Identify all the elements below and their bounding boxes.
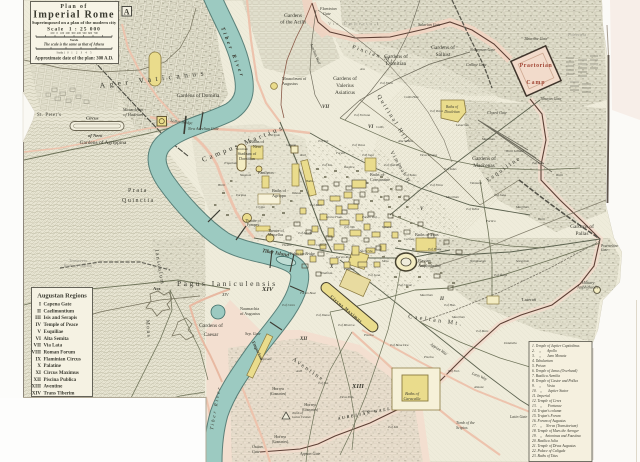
svg-text:Gardens of: Gardens of [570, 223, 594, 230]
svg-text:14. Trajan's column: 14. Trajan's column [532, 409, 562, 413]
svg-text:T.of Fort.: T.of Fort. [448, 369, 460, 373]
svg-text:Nymphaeum: Nymphaeum [469, 259, 487, 263]
svg-text:5. Prison: 5. Prison [532, 364, 546, 368]
svg-text:Circus: Circus [86, 116, 99, 121]
svg-text:Polveriera: Polveriera [568, 32, 586, 37]
svg-text:Gate: Gate [323, 11, 331, 16]
svg-text:22. Palace of Caligula: 22. Palace of Caligula [532, 449, 566, 453]
svg-text:Nero: Nero [253, 144, 261, 149]
svg-text:Gardens of Domitia: Gardens of Domitia [177, 92, 220, 99]
svg-text:Arch: Arch [295, 369, 302, 373]
svg-text:6. Temple of Janus (Overhead): 6. Temple of Janus (Overhead) [532, 369, 578, 373]
svg-text:Horrea: Horrea [272, 386, 284, 391]
svg-text:Macellum: Macellum [515, 205, 529, 209]
svg-text:Arx: Arx [153, 286, 161, 291]
svg-text:Trigarium: Trigarium [224, 161, 238, 165]
svg-text:Odeum: Odeum [292, 191, 302, 195]
svg-text:T.of Venus: T.of Venus [352, 143, 366, 147]
svg-text:Augustus: Augustus [282, 81, 298, 86]
svg-text:T.of Minerva: T.of Minerva [338, 323, 355, 327]
svg-text:100 0 100 200 300 400: 100 0 100 200 300 400 500 600 700 [50, 32, 98, 35]
svg-text:of Nero: of Nero [88, 133, 103, 138]
svg-text:XII: XII [33, 378, 41, 383]
svg-text:Asiaticus: Asiaticus [335, 90, 355, 96]
svg-text:Palatine: Palatine [343, 267, 355, 271]
svg-text:Quinctia: Quinctia [122, 198, 155, 204]
svg-text:Fabrician Bridge: Fabrician Bridge [289, 252, 315, 256]
svg-text:(Granaries): (Granaries) [272, 440, 289, 444]
svg-text:Horti: Horti [555, 173, 563, 177]
svg-text:Baths of Titus: Baths of Titus [415, 232, 439, 237]
svg-text:Esquiliae: Esquiliae [44, 330, 65, 335]
svg-text:15. Trajan's Forum: 15. Trajan's Forum [532, 414, 561, 418]
svg-text:Forum Rom.: Forum Rom. [335, 255, 352, 259]
svg-text:VIII: VIII [32, 350, 42, 355]
svg-text:T.of Peace: T.of Peace [428, 247, 442, 251]
svg-text:IV: IV [35, 323, 41, 328]
svg-text:T.of Juno: T.of Juno [362, 153, 374, 157]
svg-text:Pompey: Pompey [247, 223, 260, 227]
svg-text:Collis Hort.: Collis Hort. [404, 95, 419, 99]
svg-text:Ara: Ara [359, 67, 365, 71]
svg-text:X: X [329, 265, 334, 270]
svg-text:(Granaries): (Granaries) [270, 392, 287, 396]
svg-text:Sessorium: Sessorium [516, 259, 530, 263]
svg-text:T.of Isis: T.of Isis [322, 163, 333, 167]
svg-text:V: V [37, 330, 41, 335]
svg-text:Baths of: Baths of [446, 105, 459, 109]
svg-text:Euripus: Euripus [235, 193, 247, 197]
svg-text:Carinae: Carinae [404, 237, 415, 241]
svg-text:Forum Boar.: Forum Boar. [299, 291, 317, 295]
svg-text:Nomentan Gate: Nomentan Gate [469, 47, 495, 52]
svg-text:Amphitheatre: Amphitheatre [576, 285, 599, 290]
svg-text:T.of Fortuna: T.of Fortuna [354, 113, 370, 117]
svg-text:Portico: Portico [485, 219, 496, 223]
svg-text:Almone: Almone [473, 385, 484, 389]
svg-text:16. Forum of Augustus: 16. Forum of Augustus [532, 419, 566, 423]
svg-text:Horrea: Horrea [304, 402, 316, 407]
svg-text:11. Imperial: 11. Imperial [532, 394, 550, 398]
svg-text:T.of Spes: T.of Spes [532, 161, 544, 165]
svg-text:Trans Tiberim: Trans Tiberim [44, 392, 76, 397]
svg-text:Valerius: Valerius [336, 83, 354, 89]
svg-text:Crypta: Crypta [256, 205, 265, 209]
svg-text:4. Tabularium: 4. Tabularium [532, 359, 553, 363]
svg-text:Meta: Meta [381, 259, 389, 263]
svg-text:Colline Gate: Colline Gate [466, 62, 487, 67]
svg-text:Caesar: Caesar [204, 332, 219, 338]
svg-text:Circus Flam.: Circus Flam. [326, 215, 343, 219]
svg-text:T.of Hon.: T.of Hon. [444, 303, 456, 307]
svg-text:T.of Venus: T.of Venus [430, 109, 444, 113]
svg-text:T.of Isis: T.of Isis [388, 425, 399, 429]
svg-text:III: III [35, 316, 41, 321]
svg-text:St. Peter's: St. Peter's [37, 113, 62, 118]
svg-text:Camp: Camp [526, 80, 545, 86]
svg-text:Scipios: Scipios [456, 425, 468, 430]
svg-text:Theatre: Theatre [282, 243, 292, 247]
svg-text:Caelimontium: Caelimontium [44, 309, 75, 314]
svg-text:XIV: XIV [261, 286, 274, 293]
svg-text:New Aurelian Gate: New Aurelian Gate [187, 126, 219, 131]
svg-text:T.of Bona Dea: T.of Bona Dea [390, 343, 409, 347]
svg-text:Lateran: Lateran [522, 297, 537, 302]
svg-text:12. Temple of Ceres: 12. Temple of Ceres [532, 399, 562, 403]
svg-text:XI: XI [35, 371, 41, 376]
svg-text:Caracalla: Caracalla [404, 396, 421, 401]
svg-text:IX: IX [35, 357, 41, 362]
svg-text:Alta Semita: Alta Semita [44, 337, 70, 342]
svg-text:21. Temple of Divus Augustus: 21. Temple of Divus Augustus [532, 444, 576, 448]
svg-text:Capitol: Capitol [316, 243, 326, 247]
svg-text:Macellum: Macellum [445, 195, 459, 199]
svg-text:Prata: Prata [128, 188, 148, 194]
svg-text:Superimposed on a plan of the: Superimposed on a plan of the modern cit… [32, 20, 117, 25]
svg-text:Gardens of: Gardens of [199, 322, 223, 329]
svg-text:T.of Tellus: T.of Tellus [466, 207, 480, 211]
svg-text:Gate: Gate [252, 449, 260, 454]
svg-text:Lavacrum: Lavacrum [455, 123, 470, 127]
svg-text:XIV: XIV [32, 392, 42, 397]
svg-text:Sallust: Sallust [436, 52, 451, 58]
svg-text:Baths: Baths [306, 179, 314, 183]
svg-text:Domitian: Domitian [386, 61, 407, 67]
svg-text:Basilica: Basilica [344, 165, 355, 169]
svg-text:T.of Diana: T.of Diana [316, 313, 330, 317]
svg-text:Ustrinum: Ustrinum [268, 133, 281, 137]
svg-text:Capena Gate: Capena Gate [44, 303, 73, 308]
svg-text:T.of Mars: T.of Mars [310, 203, 323, 207]
svg-text:Tiburtine Gate: Tiburtine Gate [524, 36, 548, 41]
svg-text:Latin Gate: Latin Gate [509, 414, 527, 419]
svg-text:20. Basilica Julia: 20. Basilica Julia [532, 439, 558, 443]
svg-text:VII: VII [33, 344, 41, 349]
svg-text:Agrippa: Agrippa [272, 193, 286, 198]
svg-text:Macellum: Macellum [481, 137, 495, 141]
svg-text:18. Temple of Mars the Avenger: 18. Temple of Mars the Avenger [532, 429, 579, 433]
svg-text:Via Umberto I: Via Umberto I [328, 21, 381, 26]
svg-text:Appian Gate: Appian Gate [299, 451, 321, 456]
svg-text:Piscina Publica: Piscina Publica [44, 378, 77, 383]
svg-text:Gardens: Gardens [284, 13, 302, 19]
svg-text:XIV: XIV [221, 292, 229, 297]
svg-text:Circus Maximus: Circus Maximus [44, 371, 79, 376]
svg-text:Roman Forum: Roman Forum [44, 350, 76, 355]
svg-text:Subura: Subura [382, 225, 392, 229]
svg-text:XIII: XIII [351, 383, 364, 390]
svg-text:7. Basilica Aemilia: 7. Basilica Aemilia [532, 374, 560, 378]
svg-text:Piscina: Piscina [423, 355, 434, 359]
svg-text:XII: XII [299, 337, 308, 342]
svg-text:T.of Juno: T.of Juno [494, 193, 506, 197]
svg-text:T.of Ceres: T.of Ceres [282, 303, 296, 307]
svg-text:Horti Lolliani: Horti Lolliani [505, 149, 524, 153]
svg-text:Stagnum: Stagnum [240, 173, 252, 177]
svg-text:Caius Cestius: Caius Cestius [292, 415, 311, 419]
svg-text:The scale is the same as that: The scale is the same as that of Athens [44, 43, 105, 47]
svg-text:Sep. Gate: Sep. Gate [245, 331, 261, 336]
svg-text:Collis: Collis [376, 125, 384, 129]
svg-text:of Hadrian: of Hadrian [123, 112, 143, 117]
svg-text:Closed Gate: Closed Gate [487, 110, 507, 115]
svg-text:Piscina: Piscina [363, 333, 374, 337]
svg-text:Railway Station: Railway Station [64, 263, 93, 268]
svg-text:Pallas: Pallas [576, 231, 589, 237]
svg-text:Vicus Port.: Vicus Port. [340, 395, 354, 399]
svg-text:VII: VII [322, 105, 330, 110]
svg-text:Via Lata: Via Lata [44, 344, 63, 349]
svg-text:T.of Sun: T.of Sun [318, 139, 329, 143]
svg-text:VI: VI [35, 337, 41, 342]
svg-text:Pantheon: Pantheon [258, 170, 274, 175]
svg-text:T.of Salus: T.of Salus [444, 167, 457, 171]
svg-text:of Augustus: of Augustus [240, 311, 260, 316]
svg-text:T.of Apollo: T.of Apollo [298, 231, 312, 235]
svg-text:Vicus Longus: Vicus Longus [420, 153, 438, 157]
svg-text:Aventine: Aventine [44, 385, 64, 390]
svg-text:T.of Mars: T.of Mars [476, 329, 489, 333]
svg-text:T.of Ops: T.of Ops [344, 225, 356, 229]
svg-text:T.of Venus: T.of Venus [494, 273, 508, 277]
svg-text:of the Acilii: of the Acilii [280, 19, 306, 26]
svg-text:Temple of Peace: Temple of Peace [44, 323, 79, 328]
svg-text:II: II [37, 309, 41, 314]
svg-text:Macellum: Macellum [451, 315, 465, 319]
svg-text:23. Baths of Titus: 23. Baths of Titus [532, 454, 558, 458]
svg-text:1. Temple of Jupiter Capitolin: 1. Temple of Jupiter Capitolinus [532, 344, 580, 348]
svg-text:Arch: Arch [299, 153, 306, 157]
svg-text:Diocletian: Diocletian [443, 110, 459, 114]
svg-text:Gardens of: Gardens of [333, 75, 357, 82]
svg-text:XIII: XIII [32, 385, 42, 390]
svg-text:X: X [37, 364, 41, 369]
svg-text:Alta Semita: Alta Semita [397, 139, 413, 143]
svg-text:I: I [39, 303, 41, 308]
svg-text:Praetorian: Praetorian [520, 63, 553, 69]
svg-text:Gardens of Agrippina: Gardens of Agrippina [80, 139, 127, 146]
svg-text:Macellum: Macellum [419, 293, 433, 297]
svg-text:A: A [124, 7, 130, 16]
svg-text:T.of Sun: T.of Sun [318, 381, 329, 385]
svg-text:Sacra Via: Sacra Via [360, 249, 373, 253]
svg-text:Flaminian Circus: Flaminian Circus [44, 357, 81, 362]
svg-text:Velabrum: Velabrum [320, 271, 333, 275]
svg-text:Gate: Gate [601, 248, 608, 252]
svg-text:Approximate date of the plan:: Approximate date of the plan: 300 A.D. [35, 57, 114, 62]
svg-text:T.of Salus: T.of Salus [404, 173, 417, 177]
svg-text:Stadia 1 0 1 2 3: Stadia 1 0 1 2 3 4 5 [57, 51, 93, 54]
svg-text:Forum Traj.: Forum Traj. [361, 215, 378, 219]
svg-text:Dolabella: Dolabella [503, 341, 517, 345]
svg-text:T.of Luna: T.of Luna [368, 273, 381, 277]
svg-text:Imperial Rome: Imperial Rome [33, 10, 115, 21]
svg-text:Constantine: Constantine [370, 177, 390, 182]
svg-text:Marcellus: Marcellus [268, 233, 284, 237]
svg-text:T.of Flora: T.of Flora [430, 183, 443, 187]
svg-text:8. Temple of Castor and Pollux: 8. Temple of Castor and Pollux [532, 379, 578, 383]
svg-text:Salarian Gate: Salarian Gate [418, 22, 441, 27]
svg-text:Horrea: Horrea [274, 434, 286, 439]
svg-text:Palatine: Palatine [44, 364, 62, 369]
svg-text:Amphitheatre: Amphitheatre [418, 263, 441, 268]
svg-text:Tiburan Gate: Tiburan Gate [540, 96, 562, 101]
svg-text:Sep.Gate: Sep.Gate [260, 357, 272, 361]
svg-text:Column: Column [286, 143, 297, 147]
svg-text:Augustan Regions: Augustan Regions [37, 293, 87, 300]
svg-text:Isis and Serapis: Isis and Serapis [44, 316, 78, 321]
svg-text:T.of Claud.: T.of Claud. [398, 283, 412, 287]
svg-text:Horti: Horti [217, 183, 225, 187]
svg-text:Domitian: Domitian [239, 156, 256, 161]
svg-text:Forum: Forum [335, 151, 345, 155]
svg-text:Maecenas: Maecenas [473, 163, 495, 169]
svg-text:Yards: Yards [70, 38, 79, 42]
svg-text:Gardens of: Gardens of [431, 44, 455, 51]
svg-text:Gardens of: Gardens of [472, 155, 496, 162]
svg-text:T.of Flora: T.of Flora [380, 81, 393, 85]
svg-text:Horti: Horti [537, 217, 545, 221]
svg-text:Tarentum: Tarentum [236, 147, 249, 151]
svg-text:Gardens of: Gardens of [384, 53, 408, 60]
svg-text:T.of Quirinus: T.of Quirinus [384, 163, 402, 167]
svg-text:Viminalis: Viminalis [470, 181, 483, 185]
svg-text:(Granaries): (Granaries) [302, 408, 319, 412]
